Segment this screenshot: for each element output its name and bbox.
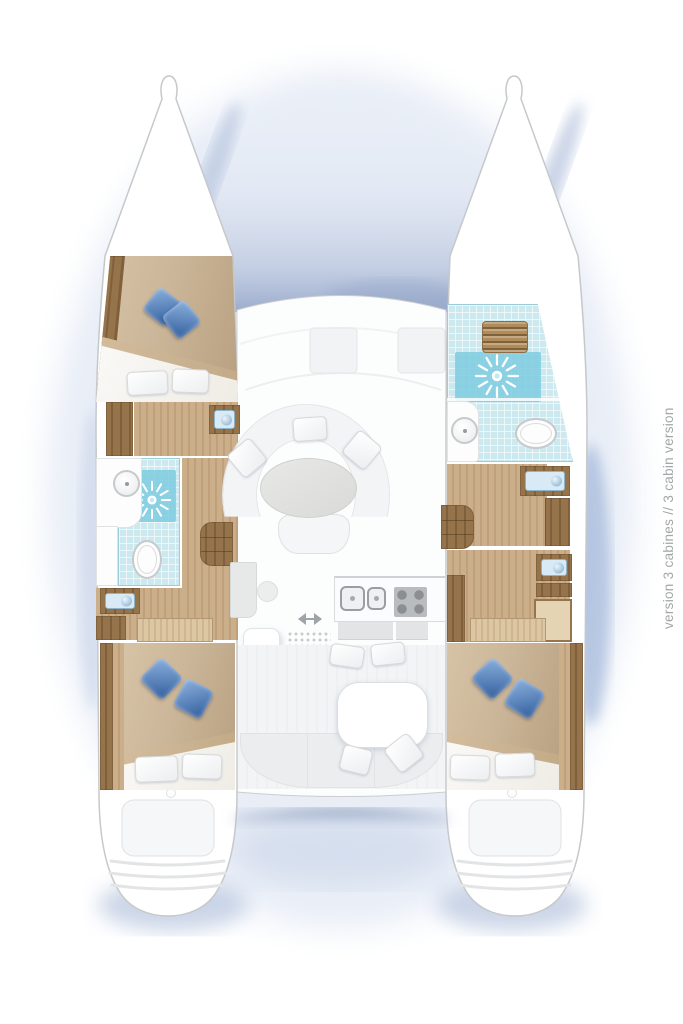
- port-forward-cabin: [96, 256, 238, 402]
- white-pillow: [495, 752, 536, 777]
- basin-bowl-icon: [551, 476, 562, 487]
- washbasin-icon: [541, 559, 567, 576]
- caption-vertical: version 3 cabines // 3 cabin version: [661, 382, 676, 654]
- round-washbasin-icon: [113, 470, 140, 497]
- cockpit-table: [337, 682, 428, 748]
- port-companionway-steps: [200, 522, 233, 566]
- port-sliding-door: [137, 618, 213, 642]
- starboard-cabinet: [536, 583, 572, 597]
- starboard-aft-cabin: [447, 643, 583, 790]
- white-pillow: [172, 368, 210, 393]
- toilet-icon: [515, 418, 557, 449]
- starboard-forward-bathroom: [447, 304, 573, 462]
- starboard-cabinet: [447, 575, 465, 642]
- sofa-pillow: [292, 416, 328, 442]
- washbasin-icon: [214, 410, 235, 429]
- port-cabinet: [96, 616, 126, 640]
- white-pillow: [182, 753, 223, 779]
- basin-bowl-icon: [121, 596, 132, 607]
- teak-grate-icon: [482, 321, 528, 353]
- white-pillow: [126, 370, 168, 396]
- cockpit-pillow: [329, 643, 366, 670]
- basin-bowl-icon: [553, 562, 564, 573]
- galley-sink-icon: [340, 586, 365, 611]
- starboard-companionway-steps: [441, 505, 474, 549]
- washbasin-icon: [105, 593, 135, 609]
- round-washbasin-icon: [451, 417, 478, 444]
- shower-drain-icon: [474, 353, 520, 399]
- galley-stove-icon: [394, 587, 427, 617]
- toilet-icon: [132, 540, 162, 579]
- starboard-cabinet: [545, 498, 570, 546]
- basin-bowl-icon: [221, 414, 232, 425]
- port-vanity-lower: [96, 526, 118, 586]
- interior-plan: [0, 0, 683, 1024]
- galley-lower-counter: [338, 622, 393, 640]
- galley-sink-icon: [367, 587, 386, 610]
- sliding-door-arrow-icon: [292, 613, 328, 625]
- chart-stool: [257, 581, 278, 602]
- washbasin-cabinet: [536, 554, 572, 581]
- wood-trim-light: [559, 643, 570, 790]
- starboard-sliding-door: [470, 618, 546, 642]
- galley-lower-counter: [396, 622, 428, 640]
- washbasin-icon: [525, 471, 565, 491]
- white-pillow: [135, 755, 179, 782]
- salon-table: [260, 458, 357, 518]
- wood-trim: [100, 643, 113, 790]
- chart-table: [230, 562, 257, 618]
- wood-trim: [570, 643, 583, 790]
- white-pillow: [450, 754, 491, 780]
- washbasin-cabinet: [100, 588, 140, 614]
- port-aft-cabin: [100, 643, 235, 790]
- salon-seat: [278, 514, 350, 554]
- washbasin-cabinet: [520, 466, 570, 496]
- catamaran-floor-plan: version 3 cabines // 3 cabin version: [0, 0, 683, 1024]
- cockpit-pillow: [370, 641, 406, 666]
- wood-trim-light: [113, 643, 124, 790]
- port-cabinet: [106, 402, 133, 456]
- washbasin-cabinet: [209, 405, 240, 434]
